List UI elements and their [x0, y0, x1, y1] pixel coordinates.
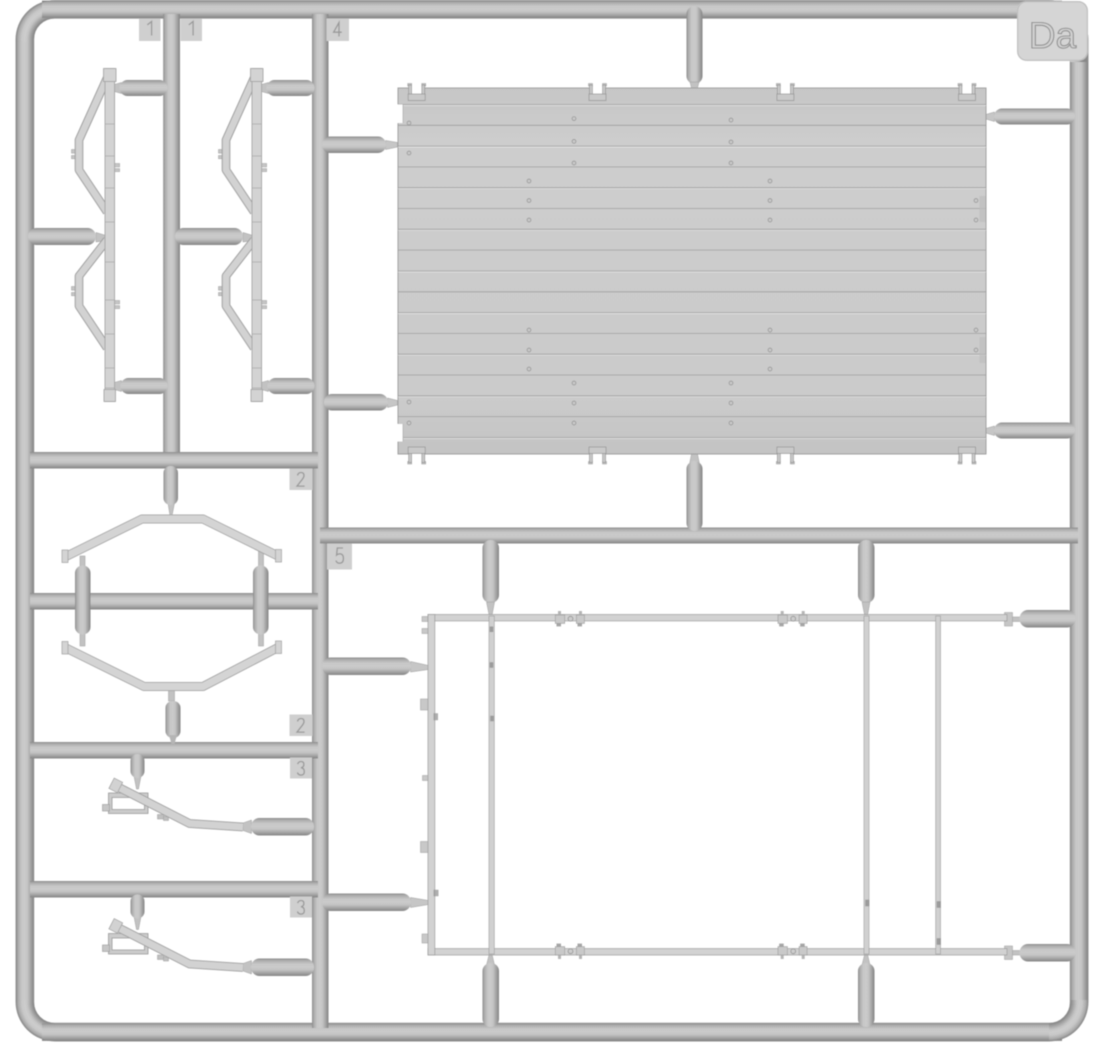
svg-text:Da: Da [1029, 15, 1077, 56]
